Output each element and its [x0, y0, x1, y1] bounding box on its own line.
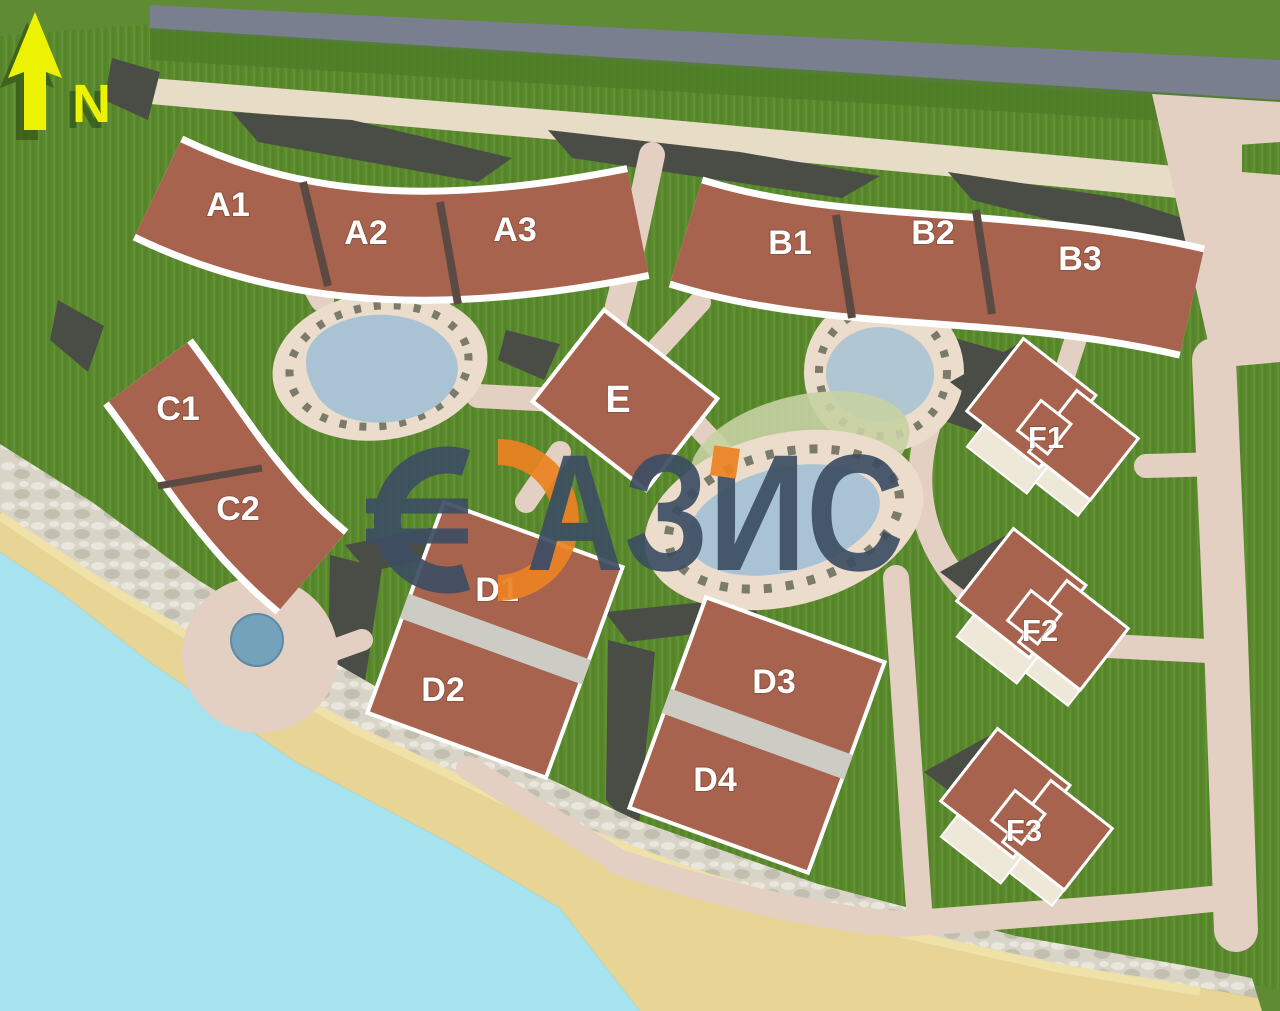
- building-label-d4: D4: [693, 761, 737, 799]
- building-label-a2: A2: [344, 214, 387, 252]
- site-plan-map: A1 A2 A3 B1 B2 B3 C1 C2 E D1 D2 D3 D4 F1…: [0, 0, 1280, 1011]
- building-label-f3: F3: [1006, 813, 1042, 848]
- building-label-f1: F1: [1028, 420, 1064, 455]
- path: [1108, 646, 1228, 652]
- building-label-d3: D3: [752, 663, 795, 701]
- building-label-c2: C2: [216, 490, 259, 528]
- building-label-b3: B3: [1058, 240, 1101, 278]
- path-spur: [1208, 130, 1280, 135]
- north-label: N: [72, 74, 111, 134]
- building-label-a3: A3: [493, 211, 536, 249]
- building-label-d2: D2: [421, 671, 464, 709]
- watermark-i-dot: [710, 445, 740, 478]
- beach-pool: [231, 614, 283, 666]
- building-label-c1: C1: [156, 390, 199, 428]
- building-label-a1: A1: [206, 186, 249, 224]
- pool-a: [306, 315, 458, 423]
- building-label-e: E: [605, 379, 630, 421]
- building-label-b2: B2: [911, 214, 954, 252]
- path: [1146, 464, 1224, 466]
- building-label-f2: F2: [1022, 613, 1058, 648]
- watermark: АЗИС: [366, 421, 904, 606]
- building-label-b1: B1: [768, 224, 811, 262]
- site-plan: A1 A2 A3 B1 B2 B3 C1 C2 E D1 D2 D3 D4 F1…: [0, 0, 1280, 1011]
